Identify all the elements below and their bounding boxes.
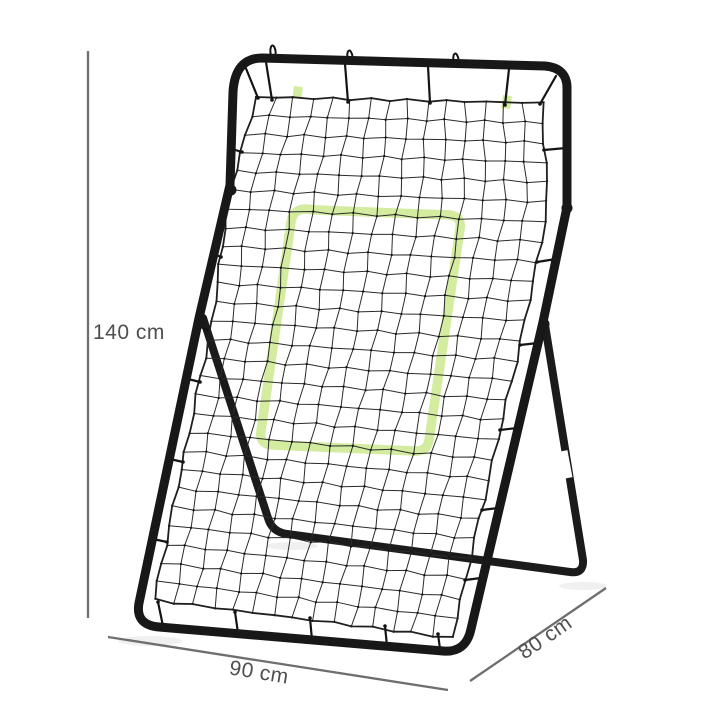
product-dimension-image: 140 cm 90 cm 80 cm [0, 0, 720, 720]
rebounder-net-illustration: 140 cm 90 cm 80 cm [0, 0, 720, 720]
leg-adjustment-sleeve [563, 451, 568, 478]
hinge-clamps [197, 185, 573, 330]
strike-zone-outline [261, 209, 461, 451]
shadow-right-foot [559, 582, 607, 590]
clamp-right-pivot [539, 319, 550, 330]
depth-dimension-label: 80 cm [514, 611, 576, 664]
green-tab-left [292, 86, 302, 98]
height-dimension-label: 140 cm [93, 321, 165, 344]
clamp-left-pivot [197, 315, 208, 326]
clamp-right-bend [562, 203, 573, 214]
width-dimension-label: 90 cm [228, 656, 291, 688]
clamp-left-bend [226, 185, 237, 196]
